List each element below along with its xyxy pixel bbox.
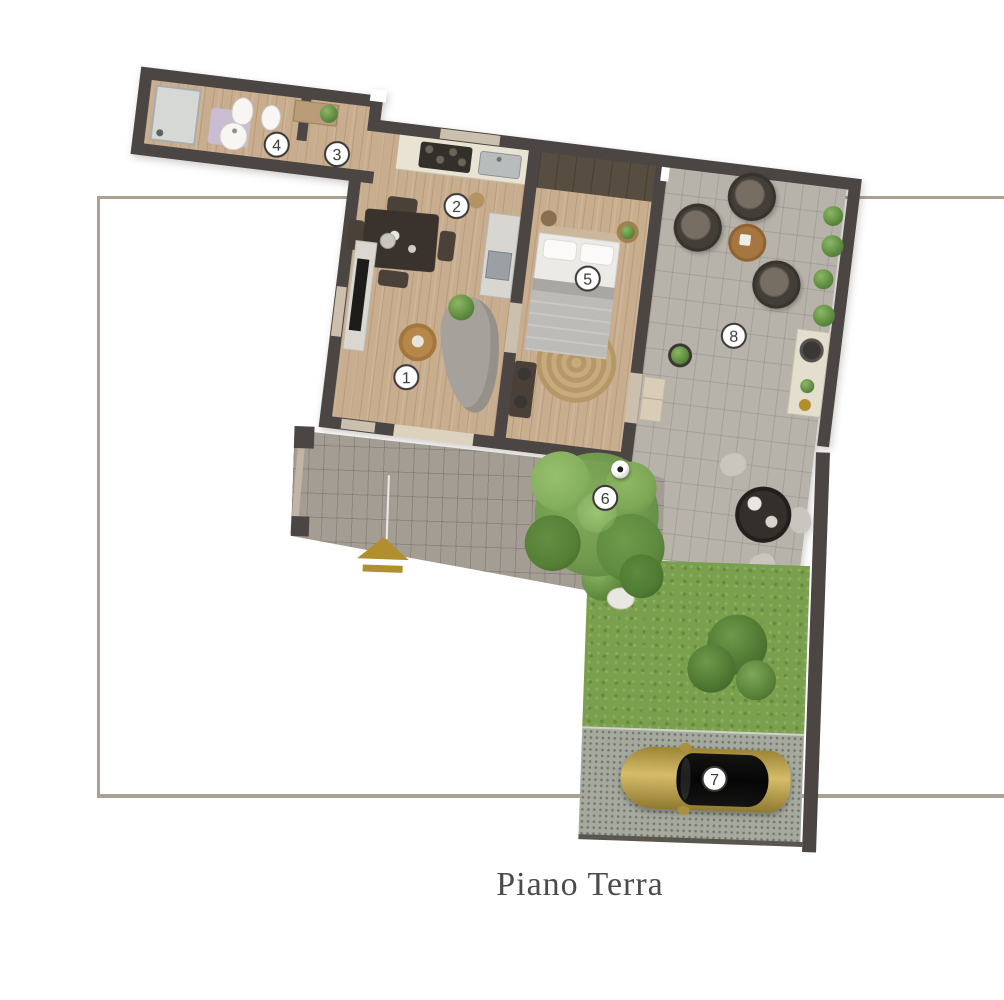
pillow <box>542 238 578 262</box>
shower <box>149 85 201 146</box>
room-badge-courtyard: 6 <box>592 485 618 511</box>
bed-blanket <box>525 290 614 360</box>
oven <box>485 250 512 281</box>
room-badge-bedroom: 5 <box>575 266 601 292</box>
terrace-table-items <box>739 234 751 246</box>
room-badge-bath: 4 <box>264 132 290 158</box>
pillow <box>579 242 615 266</box>
courtyard-pillar <box>294 426 315 449</box>
wing-notch <box>370 89 387 103</box>
outdoor-block: 6 7 <box>279 414 840 893</box>
room-badge-hall: 3 <box>324 141 350 167</box>
courtyard-pillar <box>291 516 310 537</box>
page-title: Piano Terra <box>430 866 730 904</box>
entrance-arrow-icon <box>357 536 410 560</box>
terrace-wall-gap <box>660 167 670 182</box>
room-badge-living: 1 <box>393 364 419 390</box>
room-badge-terrace: 8 <box>721 323 747 349</box>
room-badge-parking: 7 <box>702 766 728 792</box>
room-badge-kitchen: 2 <box>444 193 470 219</box>
entrance-arrow-bar <box>363 564 403 572</box>
kitchen-sink <box>478 151 523 180</box>
floor-plan-page: 1 2 3 4 5 8 <box>0 0 1004 1000</box>
